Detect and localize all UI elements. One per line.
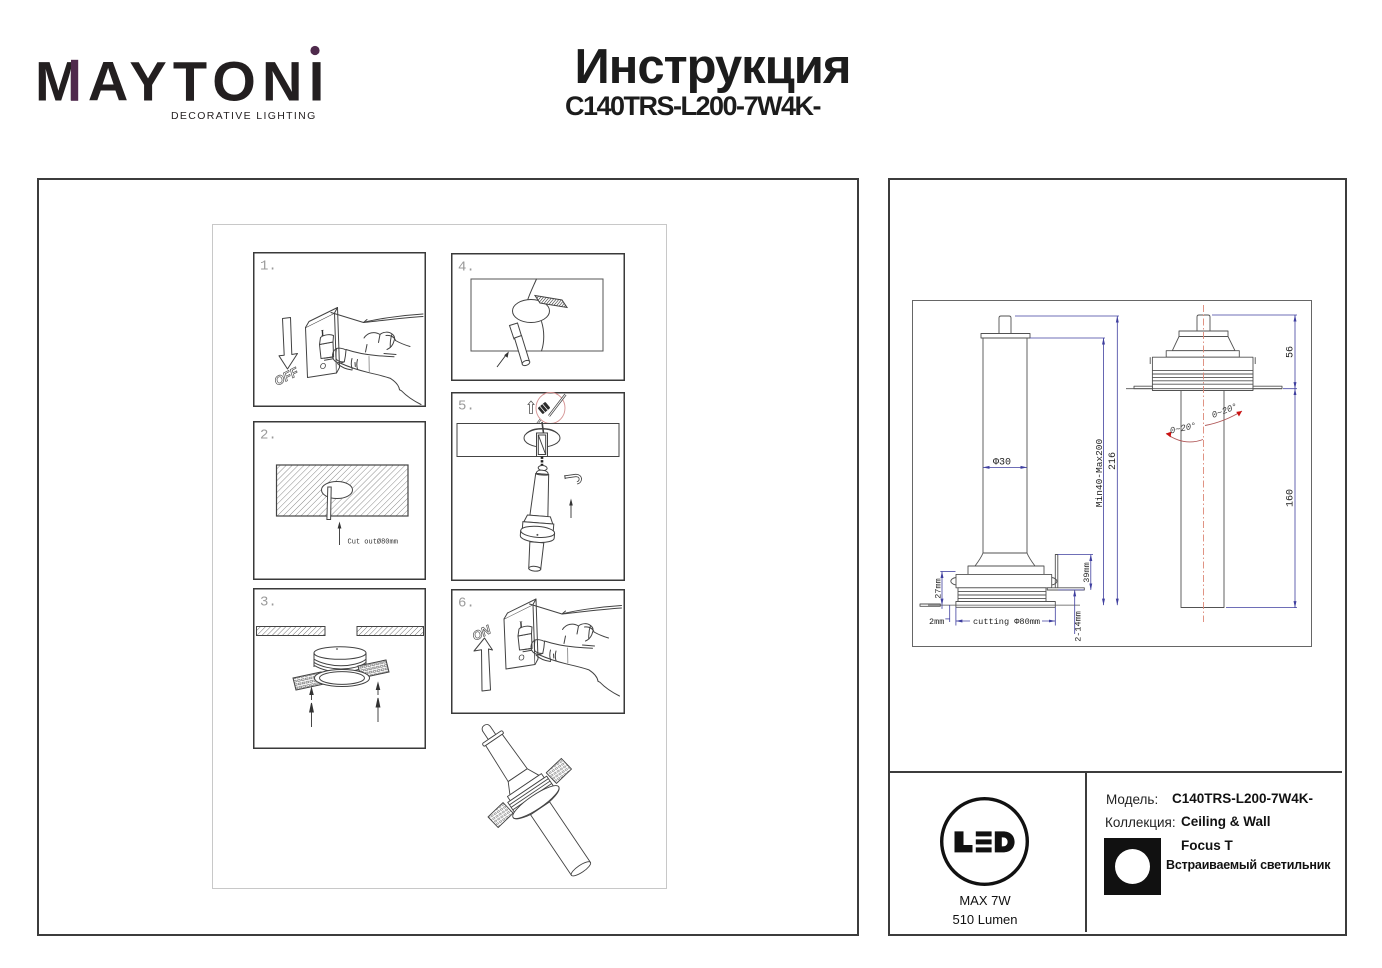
svg-text:2-14mm: 2-14mm [1073,611,1083,642]
svg-text:2.: 2. [260,428,277,444]
svg-text:O: O [320,362,327,371]
svg-text:5.: 5. [458,399,475,415]
svg-text:Cut outØ80mm: Cut outØ80mm [348,538,398,547]
svg-text:56: 56 [1286,346,1297,358]
svg-text:160: 160 [1286,489,1297,507]
svg-text:39mm: 39mm [1082,562,1092,582]
svg-text:cutting Φ80mm: cutting Φ80mm [973,617,1040,627]
svg-text:27mm: 27mm [934,578,944,598]
svg-text:O: O [518,653,525,662]
svg-text:Φ30: Φ30 [993,458,1011,469]
svg-text:MAYTONI: MAYTONI [36,50,330,113]
svg-text:2mm: 2mm [929,617,944,627]
svg-text:1.: 1. [260,259,277,275]
svg-text:Min40-Max200: Min40-Max200 [1094,439,1105,508]
svg-text:3.: 3. [260,595,277,611]
svg-text:4.: 4. [458,260,475,276]
svg-text:6.: 6. [458,596,475,612]
svg-text:DECORATIVE LIGHTING: DECORATIVE LIGHTING [171,110,317,122]
svg-text:216: 216 [1108,452,1119,470]
